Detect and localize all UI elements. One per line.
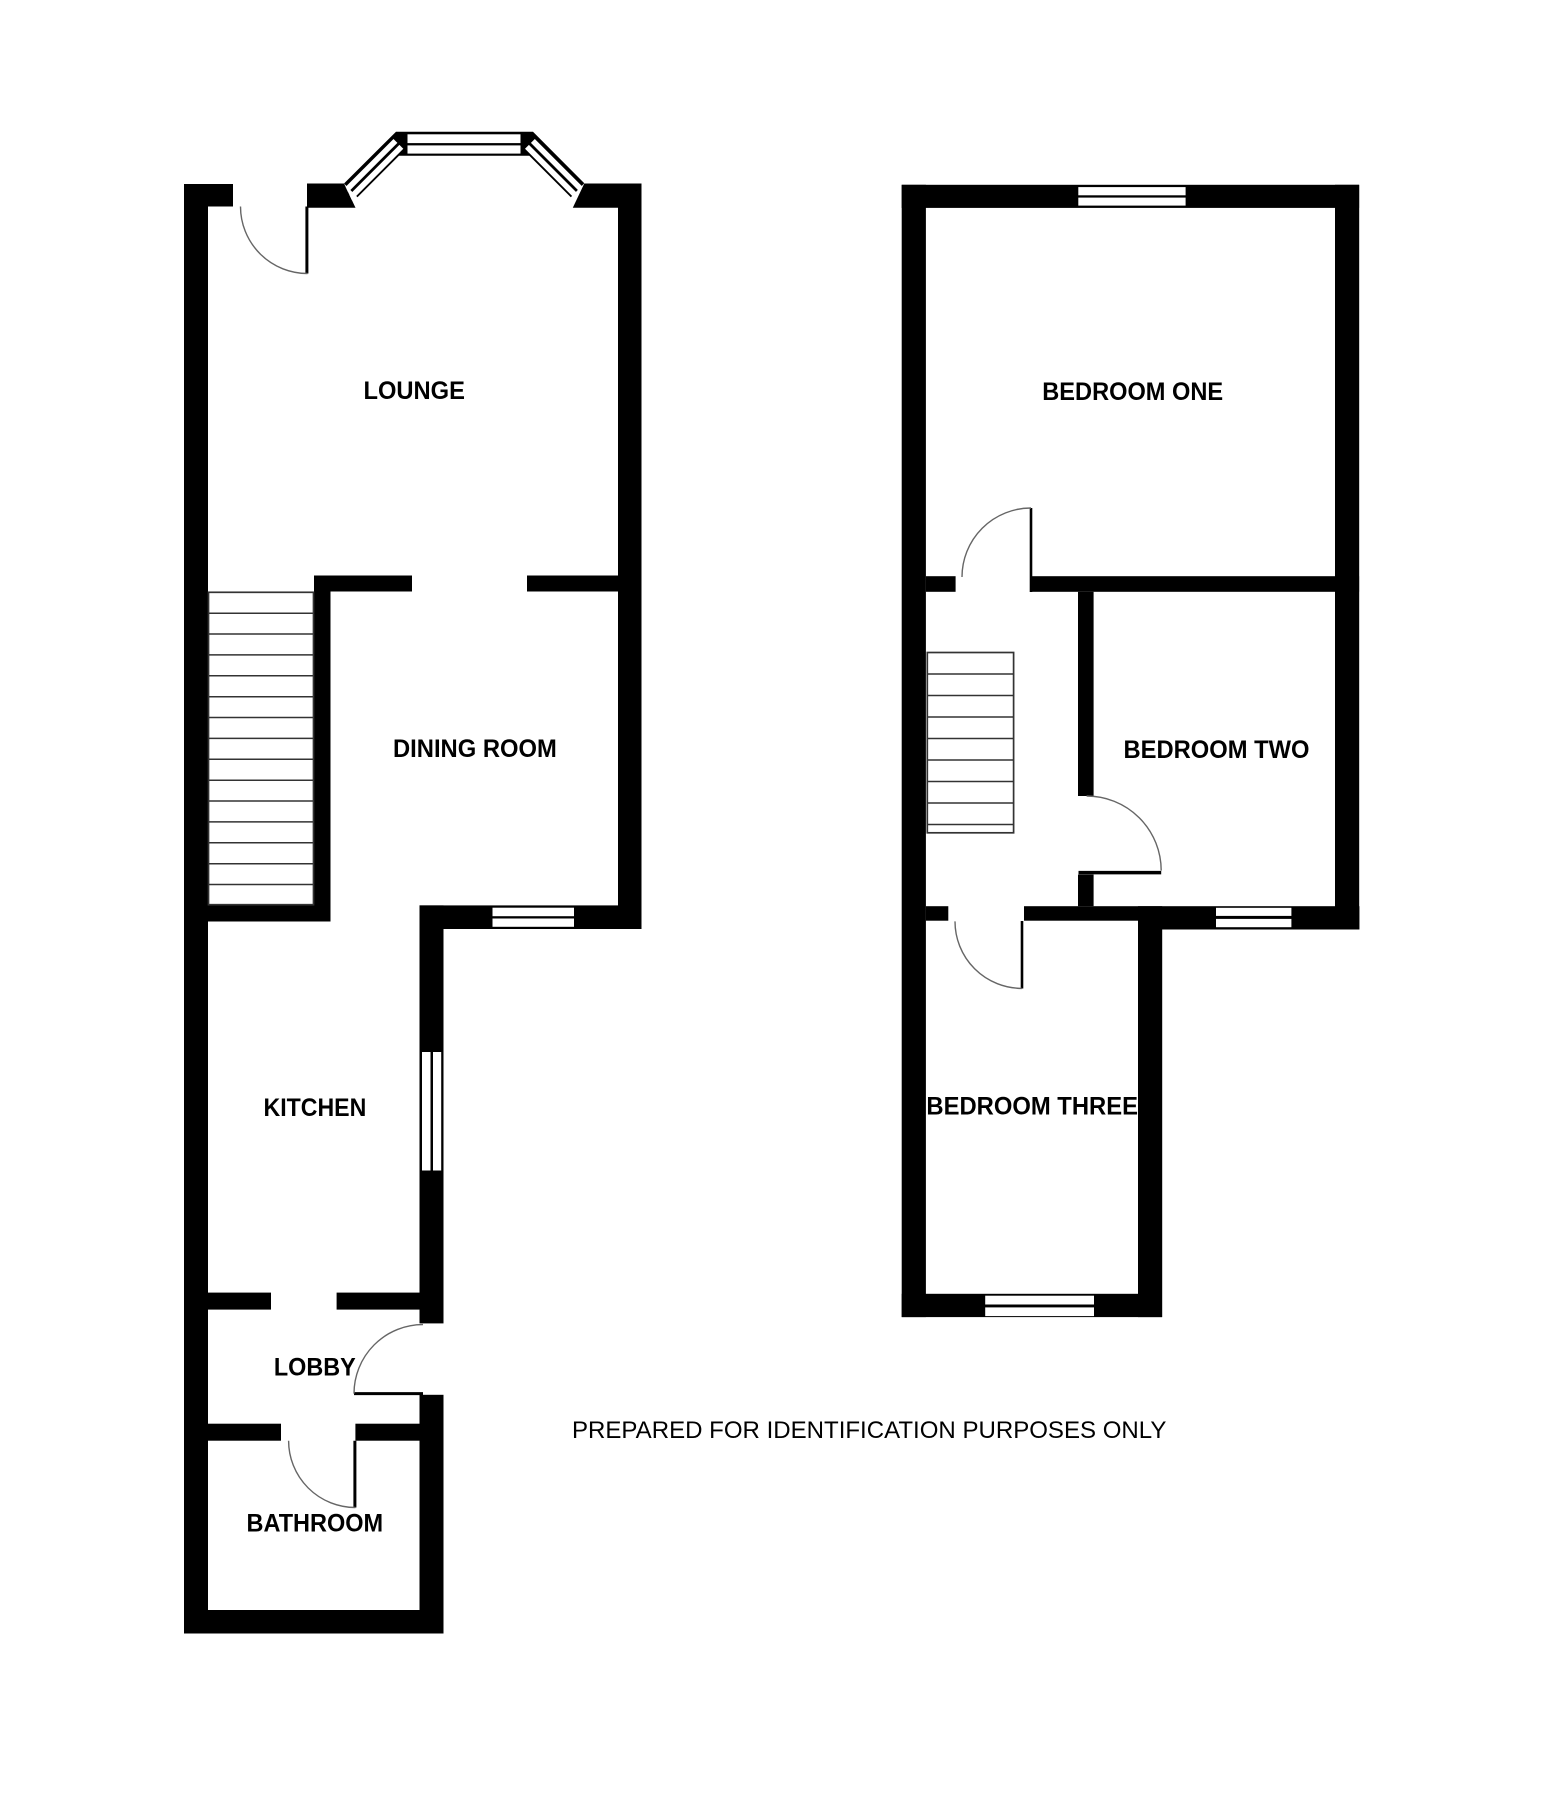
svg-text:DINING ROOM: DINING ROOM	[393, 735, 557, 763]
svg-text:PREPARED FOR IDENTIFICATION PU: PREPARED FOR IDENTIFICATION PURPOSES ONL…	[572, 1417, 1166, 1444]
svg-text:BEDROOM ONE: BEDROOM ONE	[1042, 378, 1223, 406]
svg-text:BEDROOM TWO: BEDROOM TWO	[1124, 736, 1310, 764]
svg-text:BATHROOM: BATHROOM	[247, 1509, 384, 1537]
svg-text:LOBBY: LOBBY	[274, 1354, 356, 1382]
svg-text:KITCHEN: KITCHEN	[264, 1094, 367, 1122]
svg-text:BEDROOM THREE: BEDROOM THREE	[926, 1092, 1138, 1120]
svg-text:LOUNGE: LOUNGE	[364, 377, 465, 405]
